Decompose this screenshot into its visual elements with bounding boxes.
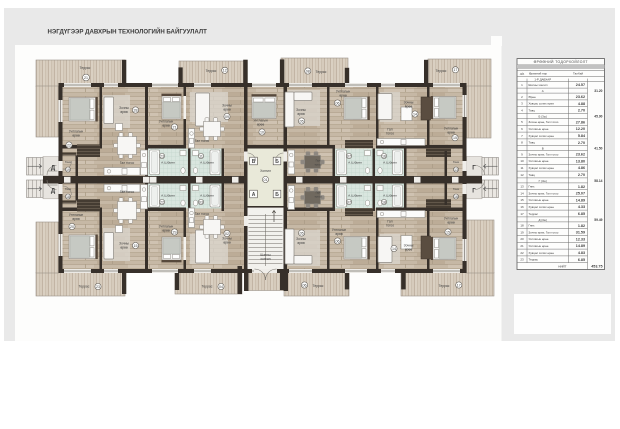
svg-text:10: 10 [520,159,524,163]
svg-text:15: 15 [520,198,524,202]
svg-text:В: В [542,147,544,151]
svg-text:14: 14 [520,191,524,195]
svg-text:Д: Д [51,166,56,172]
svg-text:Террас: Террас [529,258,539,262]
svg-text:16: 16 [454,195,458,199]
svg-text:өрөө: өрөө [335,232,343,236]
svg-text:Террас: Террас [79,285,90,289]
svg-text:Унтлагын өрөө: Унтлагын өрөө [529,237,549,241]
svg-text:Г: Г [472,166,476,172]
svg-text:07: 07 [347,200,351,204]
svg-text:24.57: 24.57 [576,83,585,87]
svg-text:05: 05 [300,119,304,123]
svg-text:Тавц: Тавц [529,141,536,145]
svg-text:19: 19 [520,230,524,234]
svg-text:Зочны өрөө, Гал тогоо: Зочны өрөө, Гал тогоо [529,230,559,234]
svg-text:07: 07 [347,154,351,158]
svg-text:Зочны өрөө, Гал тогоо: Зочны өрөө, Гал тогоо [529,120,559,124]
svg-text:11: 11 [520,166,523,170]
svg-text:14.89: 14.89 [576,198,585,202]
svg-text:21: 21 [520,244,524,248]
svg-text:Хувцас солих өрөө: Хувцас солих өрөө [529,134,555,138]
svg-text:өрөө: өрөө [223,241,231,245]
svg-text:10: 10 [260,130,264,134]
svg-text:27.86: 27.86 [576,120,585,124]
svg-text:5.84: 5.84 [578,134,586,138]
svg-text:58.14: 58.14 [594,179,602,183]
svg-text:А.Ц Өрөө: А.Ц Өрөө [200,161,214,165]
svg-text:тогоо: тогоо [386,132,394,136]
svg-text:02: 02 [225,232,229,236]
svg-text:17: 17 [453,68,457,72]
svg-text:Гал тогоо: Гал тогоо [120,161,135,165]
svg-text:23: 23 [96,285,100,289]
svg-text:453.75: 453.75 [591,265,602,269]
svg-text:Хувцас солих өрөө: Хувцас солих өрөө [529,205,555,209]
svg-text:өрөө: өрөө [72,134,80,138]
svg-text:өрөө: өрөө [447,131,455,135]
svg-text:29: 29 [173,230,177,234]
svg-text:НЭГДҮГЭЭР ДАВХРЫН ТЕХНОЛОГИЙН: НЭГДҮГЭЭР ДАВХРЫН ТЕХНОЛОГИЙН БАЙГУУЛАЛТ [48,28,208,36]
svg-text:Хувцас солих өрөө: Хувцас солих өрөө [529,102,555,106]
svg-text:19: 19 [66,168,70,172]
svg-text:өрөө: өрөө [339,94,347,98]
svg-text:А.Ц Өрөө: А.Ц Өрөө [383,161,397,165]
svg-text:03: 03 [199,200,203,204]
svg-text:өрөө: өрөө [120,246,128,250]
svg-text:Гянх: Гянх [453,187,460,191]
svg-text:Унтлагын өрөө: Унтлагын өрөө [529,244,549,248]
svg-text:4.33: 4.33 [578,205,585,209]
svg-text:22: 22 [160,200,164,204]
svg-text:Террас: Террас [313,284,324,288]
svg-text:өрөө: өрөө [162,124,170,128]
svg-text:Гянх: Гянх [65,160,72,164]
svg-text:Гал тогоо: Гал тогоо [195,212,210,216]
svg-text:Унтлагын өрөө: Унтлагын өрөө [529,127,549,131]
svg-text:31.20: 31.20 [594,89,602,93]
svg-text:09: 09 [225,115,229,119]
svg-text:Хувцас солих өрөө: Хувцас солих өрөө [529,251,555,255]
svg-text:15: 15 [453,136,457,140]
svg-text:Тавц: Тавц [529,108,536,112]
svg-text:2.70: 2.70 [578,109,585,113]
svg-text:2.70: 2.70 [578,141,585,145]
svg-text:59.49: 59.49 [594,218,602,222]
svg-text:12: 12 [223,69,227,73]
svg-text:1-Р ДАВХАР: 1-Р ДАВХАР [534,77,551,81]
svg-text:Унтлагын өрөө: Унтлагын өрөө [529,159,549,163]
svg-text:4.88: 4.88 [578,102,585,106]
svg-text:Гянх: Гянх [529,185,536,189]
svg-text:А.Ц Өрөө: А.Ц Өрөө [200,194,214,198]
svg-text:Талбай: Талбай [573,72,583,76]
svg-text:тогоо: тогоо [386,224,394,228]
svg-text:Гал тогоо: Гал тогоо [120,190,135,194]
svg-text:А.Ц Өрөө: А.Ц Өрөө [161,194,175,198]
svg-text:тогоо: тогоо [314,194,322,198]
svg-text:өрөө: өрөө [447,221,455,225]
svg-text:6.85: 6.85 [578,212,585,216]
svg-text:31.59: 31.59 [576,231,585,235]
svg-text:14: 14 [413,112,417,116]
svg-text:2.70: 2.70 [578,173,585,177]
svg-text:4.83: 4.83 [578,251,585,255]
svg-text:17: 17 [457,283,461,287]
svg-text:06: 06 [303,283,307,287]
svg-text:45.90: 45.90 [594,115,602,119]
svg-text:өрөө: өрөө [405,248,413,252]
svg-text:22: 22 [67,143,71,147]
svg-text:Шатны хонгил: Шатны хонгил [529,83,548,87]
svg-text:25.07: 25.07 [576,192,585,196]
svg-text:Б: Б [275,192,279,198]
svg-text:21: 21 [84,76,88,80]
svg-text:11: 11 [199,154,203,158]
svg-text:28: 28 [134,108,138,112]
svg-text:өрөө: өрөө [257,123,265,127]
svg-text:Гянх: Гянх [65,187,72,191]
svg-text:41.50: 41.50 [594,147,602,151]
svg-text:13: 13 [520,185,524,189]
svg-text:Террас: Террас [316,70,327,74]
svg-text:1.82: 1.82 [578,185,585,189]
svg-text:12: 12 [520,173,524,177]
svg-text:Террас: Террас [436,69,447,73]
svg-text:04: 04 [219,285,223,289]
svg-text:14: 14 [392,247,396,251]
svg-text:16: 16 [382,154,386,158]
svg-text:өрөө: өрөө [162,229,170,233]
svg-text:Гал тогоо: Гал тогоо [195,139,210,143]
svg-text:21: 21 [173,125,177,129]
svg-text:22: 22 [520,251,524,255]
svg-text:Террас: Террас [439,284,450,288]
svg-text:өрөө: өрөө [223,108,231,112]
svg-text:Террас: Террас [80,66,91,70]
svg-text:А.Ц Өрөө: А.Ц Өрөө [383,194,397,198]
svg-text:А: А [252,192,256,198]
svg-text:1.82: 1.82 [578,224,585,228]
svg-text:Хувцас солих өрөө: Хувцас солих өрөө [529,166,555,170]
svg-text:В: В [252,159,256,165]
svg-text:НИЙТ: НИЙТ [558,264,566,268]
svg-text:Д (3ш): Д (3ш) [538,218,547,222]
svg-text:16: 16 [520,205,524,209]
svg-text:Террас: Террас [529,212,539,216]
svg-text:Өрөө: Өрөө [529,95,536,99]
svg-text:06: 06 [336,239,340,243]
svg-text:А.Ц Өрөө: А.Ц Өрөө [161,161,175,165]
svg-text:23.62: 23.62 [576,153,585,157]
svg-text:д/д: д/д [520,72,525,76]
svg-text:Унтлагын өрөө: Унтлагын өрөө [529,198,549,202]
svg-text:Террас: Террас [206,69,217,73]
svg-text:14.89: 14.89 [576,244,585,248]
svg-text:өрөө: өрөө [120,110,128,114]
svg-text:23.62: 23.62 [576,95,585,99]
svg-text:13.80: 13.80 [576,159,585,163]
svg-text:01: 01 [264,178,268,182]
svg-text:Зочны өрөө, Гал тогоо: Зочны өрөө, Гал тогоо [529,152,559,156]
svg-text:23: 23 [160,154,164,158]
svg-text:Г: Г [472,189,476,195]
svg-text:хонгил: хонгил [260,257,270,261]
svg-text:12.33: 12.33 [576,237,585,241]
svg-text:08: 08 [306,69,310,73]
svg-text:23: 23 [520,258,524,262]
svg-text:өрөө: өрөө [405,105,413,109]
svg-text:20: 20 [520,237,524,241]
svg-text:өрөө: өрөө [297,112,305,116]
svg-text:15: 15 [134,244,138,248]
svg-text:06: 06 [336,101,340,105]
svg-text:20: 20 [70,225,74,229]
svg-text:А.Ц Өрөө: А.Ц Өрөө [348,161,362,165]
svg-text:17: 17 [520,212,524,216]
svg-text:4.86: 4.86 [578,166,585,170]
svg-text:05: 05 [300,231,304,235]
svg-text:Гянх: Гянх [453,160,460,164]
svg-text:А.Ц Өрөө: А.Ц Өрөө [348,194,362,198]
svg-text:өрөө: өрөө [297,241,305,245]
svg-text:Хонгил: Хонгил [260,169,271,173]
svg-text:6.85: 6.85 [578,258,585,262]
svg-text:Зочны өрөө, Гал тогоо: Зочны өрөө, Гал тогоо [529,191,559,195]
svg-text:18: 18 [520,224,524,228]
svg-text:15: 15 [446,230,450,234]
svg-text:13: 13 [454,168,458,172]
svg-text:ӨРӨӨНИЙ ТОДОРХОЙЛОЛТ: ӨРӨӨНИЙ ТОДОРХОЙЛОЛТ [534,60,588,64]
svg-text:Тавц: Тавц [529,173,536,177]
svg-text:Б (3ш): Б (3ш) [538,114,547,118]
svg-text:12.20: 12.20 [576,127,585,131]
svg-text:өрөө: өрөө [72,217,80,221]
svg-text:Г (3ш): Г (3ш) [539,179,547,183]
svg-text:тогоо: тогоо [314,162,322,166]
svg-text:18: 18 [382,200,386,204]
svg-text:Өрөөний нэр: Өрөөний нэр [529,72,547,76]
svg-text:А: А [542,89,544,93]
svg-text:18: 18 [66,195,70,199]
svg-text:Террас: Террас [202,285,213,289]
svg-text:Гянх: Гянх [529,224,536,228]
svg-text:Д: Д [51,189,56,195]
